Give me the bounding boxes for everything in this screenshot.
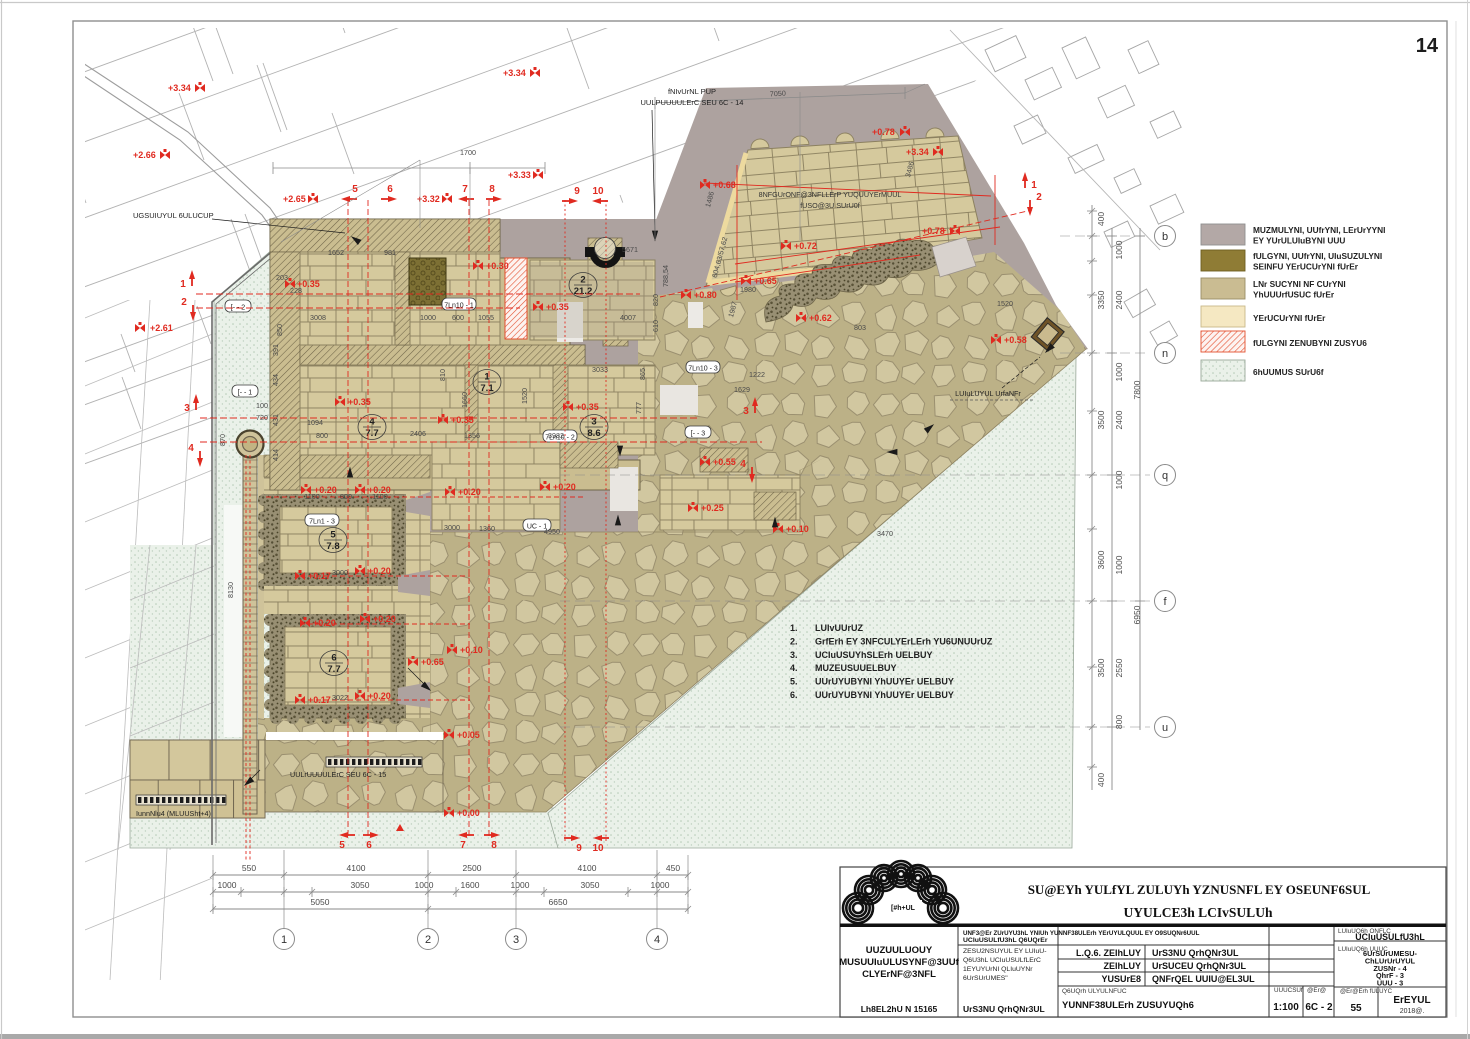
svg-text:6: 6 bbox=[366, 840, 372, 851]
svg-text:+0.05: +0.05 bbox=[457, 730, 480, 740]
svg-text:3033: 3033 bbox=[592, 365, 608, 374]
svg-text:+0.30: +0.30 bbox=[486, 261, 509, 271]
svg-text:7050: 7050 bbox=[770, 88, 787, 98]
svg-text:1: 1 bbox=[281, 934, 287, 946]
svg-text:1000: 1000 bbox=[420, 313, 436, 322]
svg-text:+0.17: +0.17 bbox=[308, 571, 331, 581]
svg-text:1000: 1000 bbox=[511, 880, 530, 890]
svg-text:+2.66: +2.66 bbox=[133, 150, 156, 160]
svg-text:Q6UQrh ULYULNFUC: Q6UQrh ULYULNFUC bbox=[1062, 988, 1127, 995]
svg-text:3008: 3008 bbox=[310, 313, 326, 322]
svg-text:1000: 1000 bbox=[1114, 362, 1124, 381]
svg-text:+0.20: +0.20 bbox=[313, 618, 336, 628]
svg-text:1660: 1660 bbox=[460, 392, 469, 408]
svg-text:391: 391 bbox=[271, 344, 280, 356]
svg-text:UNF3@Er ZUrUYU3hL YNIUh YUNNF3: UNF3@Er ZUrUYU3hL YNIUh YUNNF38ULErh YEr… bbox=[963, 930, 1200, 937]
svg-text:610: 610 bbox=[651, 320, 660, 332]
svg-text:2406: 2406 bbox=[410, 429, 426, 438]
svg-text:+0.20: +0.20 bbox=[373, 614, 396, 624]
svg-text:2.: 2. bbox=[790, 636, 798, 646]
svg-text:1094: 1094 bbox=[307, 418, 323, 427]
svg-text:720: 720 bbox=[256, 413, 268, 422]
svg-text:1000: 1000 bbox=[651, 880, 670, 890]
svg-text:UGSUIUYUL 6ULUCUP: UGSUIUYUL 6ULUCUP bbox=[133, 211, 214, 220]
svg-text:600: 600 bbox=[452, 313, 464, 322]
svg-text:1652: 1652 bbox=[328, 248, 344, 257]
svg-text:800: 800 bbox=[316, 431, 328, 440]
svg-text:8.6: 8.6 bbox=[587, 428, 600, 439]
svg-text:+0.17: +0.17 bbox=[308, 695, 331, 705]
svg-text:+0.35: +0.35 bbox=[576, 402, 599, 412]
svg-text:10: 10 bbox=[592, 843, 604, 854]
svg-text:6: 6 bbox=[387, 184, 393, 195]
svg-text:3000: 3000 bbox=[332, 568, 348, 577]
svg-text:Q6U3hL UCIuUSULfLErC: Q6U3hL UCIuUSULfLErC bbox=[963, 957, 1041, 964]
svg-text:UCIuUSUYhSLErh UELBUY: UCIuUSUYhSLErh UELBUY bbox=[815, 650, 933, 660]
svg-text:+2.61: +2.61 bbox=[150, 323, 173, 333]
svg-text:7: 7 bbox=[460, 840, 466, 851]
svg-text:YUSUrE8: YUSUrE8 bbox=[1101, 974, 1141, 984]
svg-text:2: 2 bbox=[580, 275, 585, 286]
svg-text:2: 2 bbox=[181, 297, 187, 308]
svg-text:+3.34: +3.34 bbox=[906, 147, 929, 157]
svg-text:1700: 1700 bbox=[460, 148, 476, 157]
svg-text:8: 8 bbox=[491, 840, 497, 851]
svg-text:7Ln10 - 3: 7Ln10 - 3 bbox=[688, 366, 718, 373]
svg-text:u: u bbox=[1162, 722, 1168, 734]
svg-text:3: 3 bbox=[184, 403, 190, 414]
svg-text:7: 7 bbox=[462, 184, 468, 195]
svg-text:6.: 6. bbox=[790, 690, 798, 700]
svg-text:7.7: 7.7 bbox=[327, 664, 340, 675]
svg-text:fULGYNI ZENUBYNI ZUSYU6: fULGYNI ZENUBYNI ZUSYU6 bbox=[1253, 338, 1367, 348]
svg-text:865: 865 bbox=[638, 368, 647, 380]
svg-text:+0.35: +0.35 bbox=[451, 415, 474, 425]
svg-text:803: 803 bbox=[854, 323, 866, 332]
svg-text:UUU - 3: UUU - 3 bbox=[1377, 979, 1403, 988]
svg-text:UULrUUUULErC SEU 6C - 15: UULrUUUULErC SEU 6C - 15 bbox=[290, 770, 386, 779]
svg-text:5: 5 bbox=[330, 530, 336, 541]
svg-text:+0.10: +0.10 bbox=[460, 645, 483, 655]
svg-text:+0.00: +0.00 bbox=[457, 808, 480, 818]
svg-text:10: 10 bbox=[592, 186, 604, 197]
svg-text:5: 5 bbox=[339, 840, 345, 851]
svg-text:UUrUYUBYNI YhUUYEr UELBUY: UUrUYUBYNI YhUUYEr UELBUY bbox=[815, 690, 954, 700]
svg-text:2400: 2400 bbox=[1114, 290, 1124, 309]
svg-text:1100: 1100 bbox=[372, 492, 387, 501]
svg-text:[- - 1: [- - 1 bbox=[238, 390, 252, 397]
svg-text:4950: 4950 bbox=[544, 527, 560, 536]
svg-text:+0.65: +0.65 bbox=[754, 276, 777, 286]
svg-text:YhUUUrfUSUC fUrEr: YhUUUrfUSUC fUrEr bbox=[1253, 290, 1335, 300]
svg-text:800: 800 bbox=[340, 492, 352, 501]
svg-text:8NFGUrONF@3NFLLErP YUQUUYErMUU: 8NFGUrONF@3NFLLErP YUQUUYErMUUL bbox=[759, 190, 902, 199]
svg-text:3: 3 bbox=[743, 406, 749, 417]
svg-text:3500: 3500 bbox=[1096, 658, 1106, 677]
svg-text:3050: 3050 bbox=[581, 880, 600, 890]
svg-text:550: 550 bbox=[242, 863, 256, 873]
svg-text:981: 981 bbox=[384, 248, 396, 257]
svg-text:7.8: 7.8 bbox=[326, 541, 339, 552]
svg-text:2550: 2550 bbox=[1114, 658, 1124, 677]
svg-text:MUZMULYNI, UUfrYNI, LErUrYYNI: MUZMULYNI, UUfrYNI, LErUrYYNI bbox=[1253, 225, 1385, 235]
svg-text:GrfErh EY 3NFCULYErLErh YU6UNU: GrfErh EY 3NFCULYErLErh YU6UNUUrUZ bbox=[815, 636, 993, 646]
svg-text:UCIuUSULfU3hL Q6UQrEr: UCIuUSULfU3hL Q6UQrEr bbox=[963, 937, 1048, 944]
svg-text:Lh8EL2hU N 15165: Lh8EL2hU N 15165 bbox=[861, 1004, 938, 1014]
svg-text:21.2: 21.2 bbox=[574, 286, 593, 297]
svg-text:+2.65: +2.65 bbox=[283, 194, 306, 204]
svg-text:+0.20: +0.20 bbox=[368, 566, 391, 576]
svg-text:ZESU2NSUYUL EY LUIuU-: ZESU2NSUYUL EY LUIuU- bbox=[963, 948, 1046, 955]
svg-text:1055: 1055 bbox=[478, 313, 494, 322]
svg-text:800: 800 bbox=[1114, 715, 1124, 729]
svg-text:3500: 3500 bbox=[1096, 410, 1106, 429]
svg-text:b: b bbox=[1162, 231, 1168, 243]
svg-text:n: n bbox=[1162, 348, 1168, 360]
svg-text:3982: 3982 bbox=[548, 431, 564, 440]
svg-text:2: 2 bbox=[425, 934, 431, 946]
svg-text:3600: 3600 bbox=[1096, 550, 1106, 569]
svg-text:YUNNF38ULErh ZUSUYUQh6: YUNNF38ULErh ZUSUYUQh6 bbox=[1062, 1000, 1194, 1011]
svg-text:777: 777 bbox=[634, 402, 643, 414]
svg-text:7800: 7800 bbox=[1132, 380, 1142, 399]
svg-text:q: q bbox=[1162, 470, 1168, 482]
svg-text:414: 414 bbox=[271, 449, 280, 461]
svg-text:UrS3NU QrhQNr3UL: UrS3NU QrhQNr3UL bbox=[1152, 948, 1239, 958]
svg-text:+3.34: +3.34 bbox=[168, 83, 191, 93]
svg-text:8: 8 bbox=[489, 184, 495, 195]
svg-text:4100: 4100 bbox=[347, 863, 366, 873]
svg-text:+0.65: +0.65 bbox=[421, 657, 444, 667]
svg-text:+0.55: +0.55 bbox=[713, 457, 736, 467]
svg-text:+3.33: +3.33 bbox=[508, 170, 531, 180]
svg-text:ZEIhLUY: ZEIhLUY bbox=[1104, 961, 1142, 971]
svg-text:788,54: 788,54 bbox=[661, 265, 670, 287]
svg-text:LNr SUCYNI NF CUrYNI: LNr SUCYNI NF CUrYNI bbox=[1253, 279, 1346, 289]
svg-text:14: 14 bbox=[1416, 35, 1439, 57]
svg-text:ErEYUL: ErEYUL bbox=[1393, 995, 1430, 1006]
svg-text:1629: 1629 bbox=[734, 385, 750, 394]
svg-text:434: 434 bbox=[271, 374, 280, 386]
svg-text:1600: 1600 bbox=[461, 880, 480, 890]
svg-text:1360: 1360 bbox=[479, 524, 495, 533]
svg-text:1000: 1000 bbox=[218, 880, 237, 890]
svg-text:6: 6 bbox=[331, 653, 336, 664]
svg-text:4100: 4100 bbox=[578, 863, 597, 873]
svg-text:+0.80: +0.80 bbox=[694, 290, 717, 300]
svg-text:+0.72: +0.72 bbox=[794, 241, 817, 251]
svg-text:6950: 6950 bbox=[1132, 605, 1142, 624]
svg-text:3000: 3000 bbox=[444, 523, 460, 532]
svg-text:MUSUUIuULUSYNF@3UUf: MUSUUIuULUSYNF@3UUf bbox=[839, 957, 959, 968]
svg-text:[#h+UL: [#h+UL bbox=[891, 905, 916, 912]
svg-text:203: 203 bbox=[276, 273, 288, 282]
svg-text:+0.78: +0.78 bbox=[922, 226, 945, 236]
svg-text:[- - 3: [- - 3 bbox=[691, 431, 705, 438]
svg-text:UUrUYUBYNI YhUUYEr UELBUY: UUrUYUBYNI YhUUYEr UELBUY bbox=[815, 677, 954, 687]
svg-text:450: 450 bbox=[666, 863, 680, 873]
svg-text:1000: 1000 bbox=[1114, 555, 1124, 574]
svg-text:6650: 6650 bbox=[549, 897, 568, 907]
svg-text:55: 55 bbox=[1350, 1003, 1362, 1014]
svg-text:2400: 2400 bbox=[1114, 410, 1124, 429]
svg-text:7Ln1 - 3: 7Ln1 - 3 bbox=[309, 519, 335, 526]
svg-text:9: 9 bbox=[576, 843, 582, 854]
svg-text:MUZEUSUUELBUY: MUZEUSUUELBUY bbox=[815, 663, 897, 673]
svg-text:+0.10: +0.10 bbox=[786, 524, 809, 534]
svg-text:SEINFU YErUCUrYNI fUrEr: SEINFU YErUCUrYNI fUrEr bbox=[1253, 262, 1359, 272]
svg-text:+0.35: +0.35 bbox=[546, 302, 569, 312]
svg-text:400: 400 bbox=[1096, 212, 1106, 226]
svg-text:+0.20: +0.20 bbox=[458, 487, 481, 497]
svg-text:8130: 8130 bbox=[226, 582, 235, 598]
svg-text:fNIvUrNL PUP: fNIvUrNL PUP bbox=[668, 87, 716, 96]
svg-text:UUZUULUOUY: UUZUULUOUY bbox=[866, 945, 933, 956]
svg-text:fULGYNI, UUfrYNI, UIuSUZULYNI: fULGYNI, UUfrYNI, UIuSUZULYNI bbox=[1253, 251, 1382, 261]
svg-text:1: 1 bbox=[1031, 180, 1037, 191]
svg-text:+3.32: +3.32 bbox=[417, 194, 440, 204]
svg-text:+0.25: +0.25 bbox=[701, 503, 724, 513]
svg-text:@Er@: @Er@ bbox=[1307, 987, 1326, 994]
svg-text:fUSO@3U SUrU0f: fUSO@3U SUrU0f bbox=[800, 201, 860, 210]
svg-text:L.Q.6. ZEIhLUY: L.Q.6. ZEIhLUY bbox=[1076, 948, 1141, 958]
svg-text:3.: 3. bbox=[790, 650, 798, 660]
svg-text:SU@EYh YULfYL ZULUYh YZNUSNFL: SU@EYh YULfYL ZULUYh YZNUSNFL EY OSEUNF6… bbox=[1028, 882, 1371, 897]
svg-text:4: 4 bbox=[188, 443, 194, 454]
svg-text:228: 228 bbox=[290, 286, 302, 295]
svg-text:+3.34: +3.34 bbox=[503, 68, 526, 78]
svg-text:1000: 1000 bbox=[1114, 240, 1124, 259]
svg-text:1EYUYUrNI QLIuUYNr: 1EYUYUrNI QLIuUYNr bbox=[963, 966, 1033, 973]
svg-text:EY YUrULUIuBYNI UUU: EY YUrULUIuBYNI UUU bbox=[1253, 236, 1345, 246]
svg-text:+0.58: +0.58 bbox=[1004, 335, 1027, 345]
svg-text:UULPUUUULErC SEU 6C - 14: UULPUUUULErC SEU 6C - 14 bbox=[641, 98, 744, 107]
svg-text:2500: 2500 bbox=[463, 863, 482, 873]
svg-text:6hUUMUS SUrU6f: 6hUUMUS SUrU6f bbox=[1253, 367, 1324, 377]
svg-text:3470: 3470 bbox=[877, 529, 893, 538]
svg-text:5050: 5050 bbox=[311, 897, 330, 907]
svg-text:400: 400 bbox=[1096, 773, 1106, 787]
svg-text:2: 2 bbox=[1036, 192, 1042, 203]
svg-text:QNFrQEL UUIU@EL3UL: QNFrQEL UUIU@EL3UL bbox=[1152, 974, 1255, 984]
svg-text:5: 5 bbox=[352, 184, 358, 195]
svg-text:+0.20: +0.20 bbox=[553, 482, 576, 492]
svg-text:3350: 3350 bbox=[1096, 290, 1106, 309]
svg-text:1222: 1222 bbox=[749, 370, 765, 379]
svg-text:UCIuUSULfU3hL: UCIuUSULfU3hL bbox=[1355, 932, 1425, 942]
svg-text:810: 810 bbox=[438, 369, 447, 381]
svg-text:+0.20: +0.20 bbox=[368, 691, 391, 701]
svg-text:431: 431 bbox=[271, 414, 280, 426]
svg-text:1356: 1356 bbox=[464, 431, 480, 440]
svg-text:6UrSUrUMES": 6UrSUrUMES" bbox=[963, 975, 1008, 982]
svg-text:5671: 5671 bbox=[622, 245, 638, 254]
svg-text:UrSUCEU QrhQNr3UL: UrSUCEU QrhQNr3UL bbox=[1152, 961, 1247, 971]
svg-text:2018@.: 2018@. bbox=[1400, 1008, 1425, 1015]
svg-text:1000: 1000 bbox=[1114, 470, 1124, 489]
svg-text:4007: 4007 bbox=[620, 313, 636, 322]
svg-text:1.: 1. bbox=[790, 623, 798, 633]
svg-text:UUUCSUf: UUUCSUf bbox=[1274, 987, 1303, 994]
svg-text:UYULCE3h LCIvSULUh: UYULCE3h LCIvSULUh bbox=[1124, 905, 1273, 920]
svg-text:+0.68: +0.68 bbox=[713, 180, 736, 190]
svg-text:7.1: 7.1 bbox=[480, 383, 494, 394]
svg-text:1520: 1520 bbox=[997, 299, 1013, 308]
svg-text:+0.78: +0.78 bbox=[872, 127, 895, 137]
svg-text:100: 100 bbox=[256, 401, 268, 410]
svg-text:3022: 3022 bbox=[332, 693, 348, 702]
svg-text:CLYErNF@3NFL: CLYErNF@3NFL bbox=[862, 969, 936, 980]
svg-text:6C - 2: 6C - 2 bbox=[1305, 1002, 1333, 1013]
svg-text:LUIuLUYUL UrfaNFr: LUIuLUYUL UrfaNFr bbox=[955, 389, 1021, 398]
svg-text:870: 870 bbox=[218, 434, 227, 446]
svg-text:IunnNlu4 (MLUUSht+4): IunnNlu4 (MLUUSht+4) bbox=[136, 809, 211, 818]
svg-text:UrS3NU QrhQNr3UL: UrS3NU QrhQNr3UL bbox=[963, 1004, 1045, 1014]
svg-text:3: 3 bbox=[513, 934, 519, 946]
svg-text:YErUCUrYNI fUrEr: YErUCUrYNI fUrEr bbox=[1253, 313, 1326, 323]
svg-text:850: 850 bbox=[275, 324, 284, 336]
svg-text:+0.62: +0.62 bbox=[809, 313, 832, 323]
svg-text:1980: 1980 bbox=[740, 285, 756, 294]
svg-text:4: 4 bbox=[740, 459, 746, 470]
svg-text:1:100: 1:100 bbox=[1273, 1002, 1299, 1013]
svg-text:@Er@Erh fULUYC: @Er@Erh fULUYC bbox=[1340, 988, 1393, 995]
svg-text:4: 4 bbox=[654, 934, 660, 946]
svg-text:1000: 1000 bbox=[415, 880, 434, 890]
svg-text:1520: 1520 bbox=[520, 388, 529, 404]
svg-text:820: 820 bbox=[651, 294, 660, 306]
svg-text:9: 9 bbox=[574, 186, 580, 197]
svg-text:1100: 1100 bbox=[304, 492, 319, 501]
svg-text:1: 1 bbox=[180, 279, 186, 290]
svg-text:4.: 4. bbox=[790, 663, 798, 673]
svg-text:+0.35: +0.35 bbox=[348, 397, 371, 407]
svg-text:1: 1 bbox=[484, 372, 490, 383]
svg-text:5.: 5. bbox=[790, 677, 798, 687]
svg-text:3050: 3050 bbox=[351, 880, 370, 890]
svg-text:7.7: 7.7 bbox=[365, 428, 378, 439]
svg-text:LUIvUUrUZ: LUIvUUrUZ bbox=[815, 623, 864, 633]
